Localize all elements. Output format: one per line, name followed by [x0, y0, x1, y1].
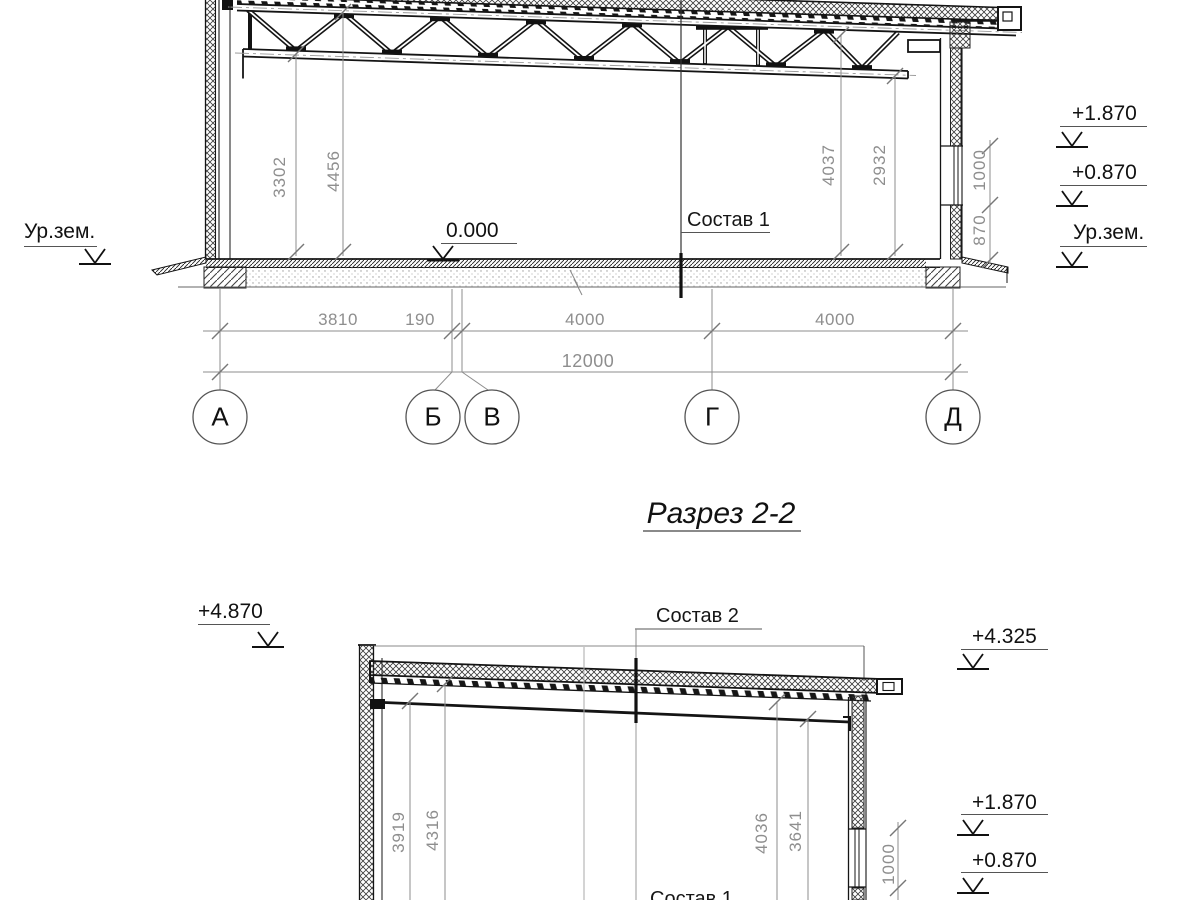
dim-window-head-1000-lower: 1000 — [879, 843, 899, 885]
upper-vertical-dims — [288, 4, 998, 268]
section-title: Разрез 2-2 — [647, 497, 796, 531]
axis-bubble-v: В — [483, 402, 500, 433]
section-linework — [0, 0, 1200, 900]
upper-right-wall — [940, 22, 970, 259]
elevation-4325-label: +4.325 — [972, 625, 1037, 649]
floor-composition-callout-lower: Состав 1 — [650, 888, 733, 900]
upper-axis-bubbles — [193, 390, 980, 444]
upper-left-wall — [206, 0, 231, 259]
dim-4456: 4456 — [324, 150, 344, 192]
dim-2932: 2932 — [870, 144, 890, 186]
axis-bubble-b: Б — [424, 402, 441, 433]
axis-bubble-d: Д — [944, 402, 962, 433]
dim-span-4000b: 4000 — [815, 310, 855, 330]
drawing-sheet: Ур.зем. 0.000 Состав 1 +1.870 +0.870 Ур.… — [0, 0, 1200, 900]
elevation-0870-label-lower: +0.870 — [972, 849, 1037, 873]
elevation-0870-label: +0.870 — [1072, 161, 1137, 185]
dim-window-head-1000: 1000 — [970, 149, 990, 191]
dim-span-190: 190 — [405, 310, 435, 330]
upper-level-marks — [24, 127, 1147, 268]
elevation-1870-label: +1.870 — [1072, 102, 1137, 126]
dim-total-12000: 12000 — [562, 351, 615, 372]
elevation-4870-label: +4.870 — [198, 600, 263, 624]
axis-bubble-g: Г — [705, 402, 719, 433]
elevation-1870-label-lower: +1.870 — [972, 791, 1037, 815]
dim-4037: 4037 — [819, 144, 839, 186]
axis-bubble-a: А — [211, 402, 228, 433]
dim-span-3810: 3810 — [318, 310, 358, 330]
upper-dim-chains — [203, 289, 968, 390]
roof-composition-callout: Состав 2 — [656, 605, 739, 628]
dim-3919: 3919 — [389, 811, 409, 853]
lower-level-marks — [198, 625, 1048, 894]
floor-composition-callout: Состав 1 — [687, 209, 770, 232]
dim-window-sill-870: 870 — [970, 214, 990, 245]
lower-vertical-dims — [402, 676, 906, 900]
dim-span-4000a: 4000 — [565, 310, 605, 330]
zero-level-label: 0.000 — [446, 219, 499, 243]
ground-level-label-left: Ур.зем. — [24, 220, 95, 244]
upper-floor — [152, 257, 1008, 295]
ground-level-label-right: Ур.зем. — [1073, 221, 1144, 245]
dim-4036: 4036 — [752, 812, 772, 854]
lower-section-drawing — [198, 625, 1048, 900]
dim-4316: 4316 — [423, 809, 443, 851]
dim-3641: 3641 — [786, 810, 806, 852]
dim-3302: 3302 — [270, 156, 290, 198]
